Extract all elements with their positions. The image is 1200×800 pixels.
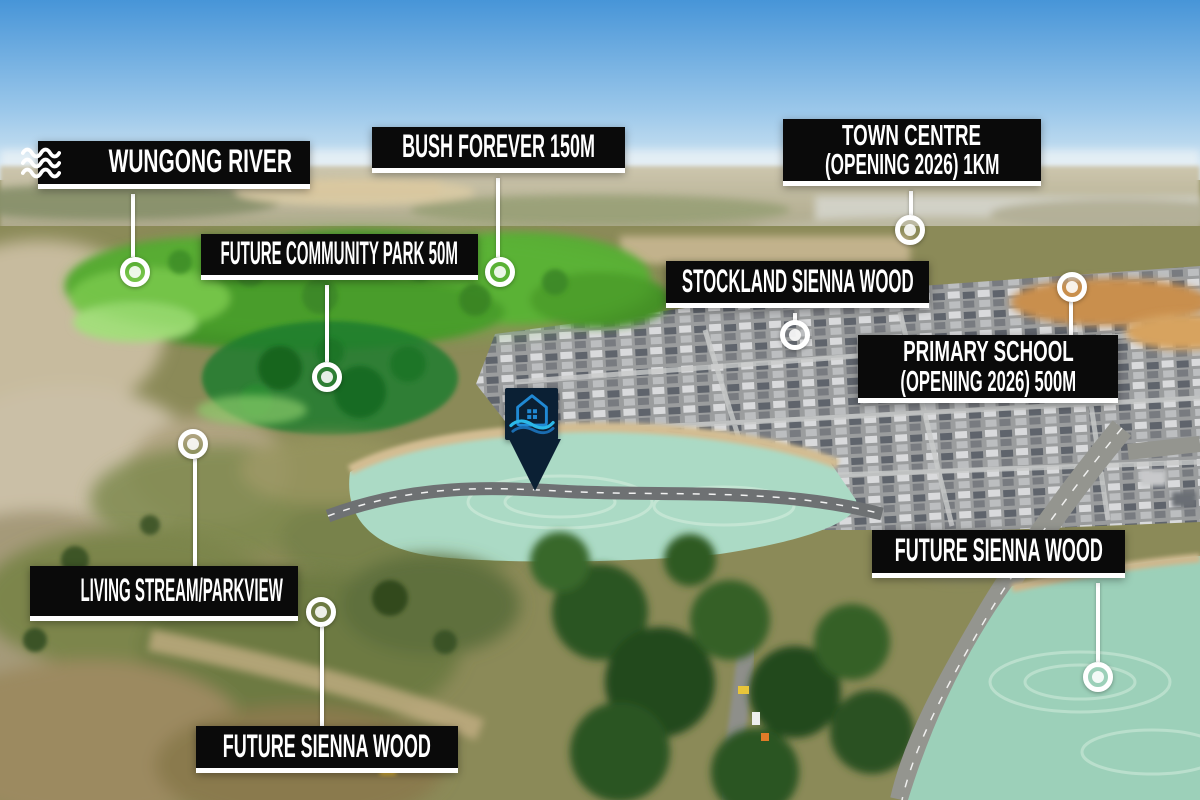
callout-living-stream-parkview: LIVING STREAM/PARKVIEW (30, 566, 298, 621)
location-marker-future-sienna-wood-bottom (306, 597, 336, 627)
location-marker-living-stream (178, 429, 208, 459)
callout-wungong-river: WUNGONG RIVER (38, 141, 310, 189)
callout-bush-forever: BUSH FOREVER 150M (372, 127, 625, 173)
location-marker-primary-school (1057, 272, 1087, 302)
callout-future-sienna-wood-bottom: FUTURE SIENNA WOOD (196, 726, 458, 773)
callout-label: FUTURE SIENNA WOOD (223, 731, 431, 763)
leader-line-community-park (325, 285, 329, 362)
leader-line-future-sienna-wood-bottom (320, 627, 324, 726)
aerial-site-map: WUNGONG RIVER BUSH FOREVER 150M TOWN CEN… (0, 0, 1200, 800)
leader-line-bush-forever (496, 178, 500, 257)
leader-line-wungong-river (131, 194, 135, 257)
location-marker-wungong-river (120, 257, 150, 287)
leader-line-primary-school (1069, 302, 1073, 335)
callout-label-line2: (OPENING 2026) 500M (900, 365, 1076, 398)
leader-line-town-centre (909, 191, 913, 215)
callout-label: FUTURE SIENNA WOOD (894, 535, 1102, 567)
callout-label-line2: (OPENING 2026) 1KM (825, 148, 1000, 181)
leader-line-living-stream (193, 459, 197, 566)
location-marker-bush-forever (485, 257, 515, 287)
leader-line-future-sienna-wood-right (1096, 583, 1100, 662)
waves-icon (21, 147, 61, 179)
callout-stockland-sienna-wood: STOCKLAND SIENNA WOOD (666, 261, 929, 308)
callout-primary-school: PRIMARY SCHOOL (OPENING 2026) 500M (858, 335, 1118, 403)
callout-label: LIVING STREAM/PARKVIEW (81, 575, 283, 607)
callout-label: STOCKLAND SIENNA WOOD (682, 266, 914, 298)
sienna-wood-logo (505, 388, 558, 440)
callout-town-centre: TOWN CENTRE (OPENING 2026) 1KM (783, 119, 1041, 186)
callout-label: BUSH FOREVER 150M (402, 131, 595, 163)
location-marker-community-park (312, 362, 342, 392)
location-marker-stockland (780, 320, 810, 350)
callout-future-sienna-wood-right: FUTURE SIENNA WOOD (872, 530, 1125, 578)
site-pointer-arrow (509, 439, 561, 491)
callout-label: FUTURE COMMUNITY PARK 50M (221, 238, 458, 270)
location-marker-future-sienna-wood-right (1083, 662, 1113, 692)
location-marker-town-centre (895, 215, 925, 245)
callout-label: WUNGONG RIVER (108, 146, 291, 178)
callout-future-community-park: FUTURE COMMUNITY PARK 50M (201, 234, 478, 280)
house-waves-icon (509, 391, 555, 437)
